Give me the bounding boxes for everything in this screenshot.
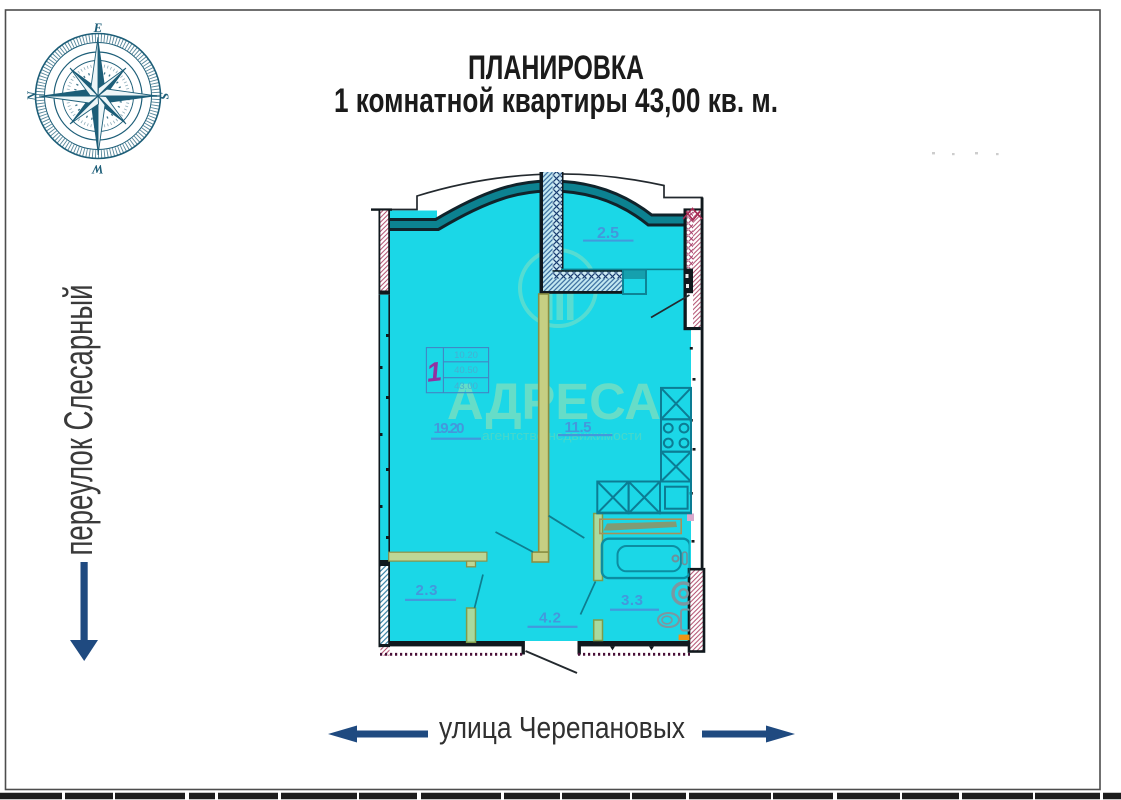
svg-text:1: 1	[425, 356, 443, 387]
svg-text:4.2: 4.2	[539, 610, 561, 627]
svg-text:10.20: 10.20	[454, 350, 478, 361]
svg-text:3.3: 3.3	[621, 592, 643, 609]
svg-text:АДРЕСА: АДРЕСА	[447, 373, 661, 430]
svg-text:S: S	[157, 92, 172, 99]
svg-text:W: W	[91, 162, 104, 177]
svg-text:2.5: 2.5	[597, 225, 619, 242]
svg-text:1 комнатной квартиры 43,00 кв.: 1 комнатной квартиры 43,00 кв. м.	[334, 82, 778, 120]
svg-text:11.5: 11.5	[565, 419, 592, 436]
svg-text:2.3: 2.3	[416, 582, 438, 599]
svg-text:19.20: 19.20	[434, 420, 465, 437]
svg-text:улица Черепановых: улица Черепановых	[439, 710, 685, 745]
svg-text:переулок Слесарный: переулок Слесарный	[57, 285, 101, 556]
svg-text:N: N	[24, 91, 39, 102]
svg-text:40.50: 40.50	[454, 365, 478, 376]
svg-text:E: E	[93, 20, 103, 35]
svg-text:43.00: 43.00	[454, 381, 478, 392]
